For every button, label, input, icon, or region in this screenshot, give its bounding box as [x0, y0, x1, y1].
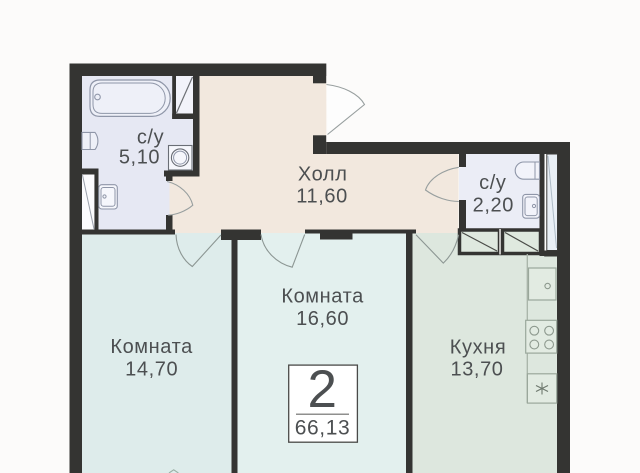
svg-text:с/у: с/у — [479, 172, 506, 194]
svg-text:66,13: 66,13 — [295, 417, 351, 440]
svg-text:14,70: 14,70 — [125, 359, 178, 381]
svg-text:с/у: с/у — [137, 127, 164, 149]
svg-text:Холл: Холл — [298, 163, 348, 185]
svg-text:Кухня: Кухня — [450, 337, 507, 359]
svg-text:2: 2 — [307, 360, 337, 419]
svg-text:2,20: 2,20 — [473, 195, 514, 217]
svg-text:Комната: Комната — [110, 336, 193, 358]
svg-text:16,60: 16,60 — [296, 308, 349, 330]
svg-text:5,10: 5,10 — [119, 147, 160, 169]
svg-text:13,70: 13,70 — [450, 359, 503, 381]
svg-text:11,60: 11,60 — [296, 186, 348, 208]
svg-text:Комната: Комната — [281, 286, 364, 308]
